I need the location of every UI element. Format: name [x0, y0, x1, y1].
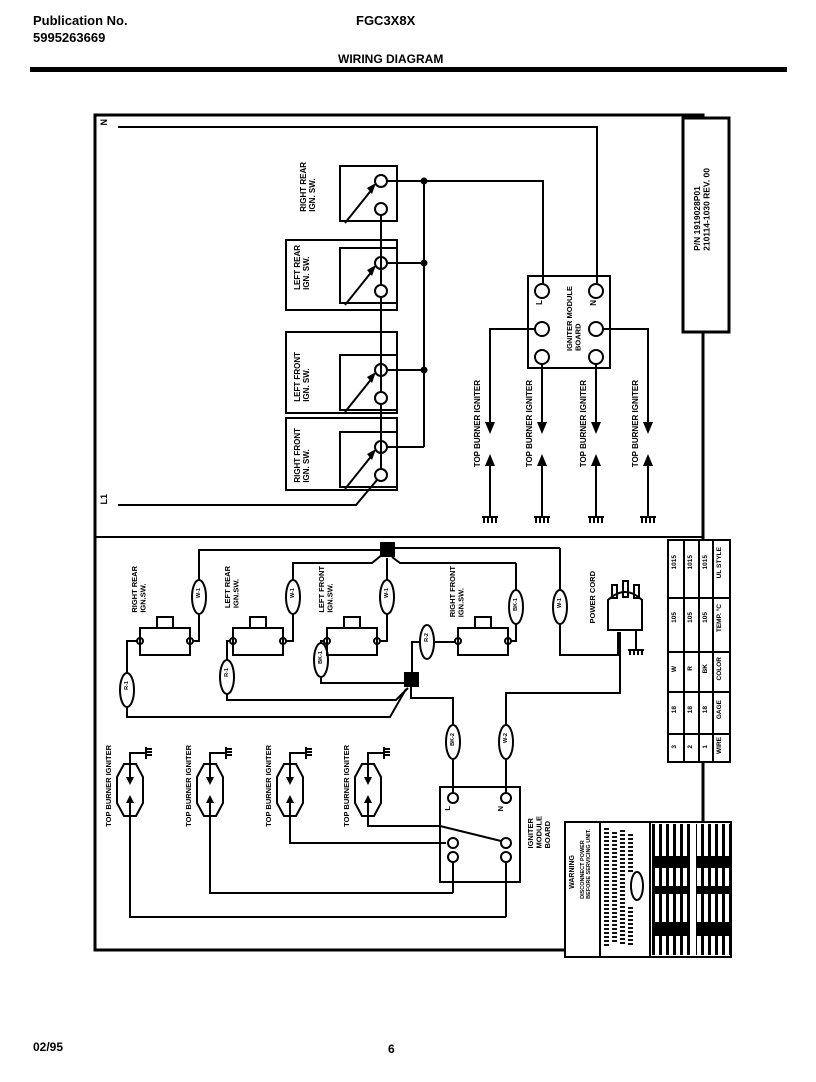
- wire-tag-6: W-1: [384, 588, 390, 598]
- wire-table-cell: 18: [671, 706, 678, 713]
- wire-tag-2: W-1: [196, 588, 202, 598]
- wire-table-header-temp: TEMP. °C: [716, 604, 723, 632]
- power-cord-label: POWER CORD: [589, 571, 597, 624]
- igniter-outputs: [482, 329, 656, 523]
- layout-switch-label-right-rear: RIGHT REAR IGN.SW.: [131, 566, 148, 613]
- layout-igniter-label-4: TOP BURNER IGNITER: [343, 745, 351, 827]
- wire-table-cell: W: [671, 666, 678, 672]
- igniter-label-3: TOP BURNER IGNITER: [580, 380, 589, 467]
- wire-tag-5: BK-1: [318, 651, 324, 664]
- wire-table-header-wire: WIRE: [716, 737, 723, 754]
- layout-switch-label-left-front: LEFT FRONT IGN.SW.: [318, 566, 335, 613]
- wire-tag-9: W-1: [557, 598, 563, 608]
- legend-gap: [690, 824, 696, 955]
- module-board-label-schematic: IGNITER MODULE BOARD: [566, 286, 583, 351]
- manual-page: Publication No. 5995263669 FGC3X8X WIRIN…: [0, 0, 816, 1082]
- module-terminal-n-layout: N: [497, 806, 505, 811]
- switch-label-left-front: LEFT FRONT IGN. SW.: [294, 352, 312, 402]
- wire-table-cell: 3: [671, 745, 678, 749]
- wire-table-header-ulstyle: UL STYLE: [716, 547, 723, 578]
- wire-table-cell: 18: [687, 706, 694, 713]
- wire-table-header-gage: GAGE: [716, 700, 723, 719]
- wire-table-cell: 1015: [702, 555, 709, 569]
- line-terminal-label: L1: [99, 494, 109, 505]
- layout-wires: [127, 548, 620, 917]
- igniter-label-4: TOP BURNER IGNITER: [632, 380, 641, 467]
- ignition-switch-right-rear: [340, 166, 397, 223]
- module-board-label-layout: IGNITER MODULE BOARD: [527, 816, 552, 849]
- layout-section: [117, 540, 731, 957]
- module-terminal-l-schematic: L: [536, 300, 545, 305]
- module-terminal-n-schematic: N: [590, 300, 599, 306]
- wire-table-cell: 1015: [671, 555, 678, 569]
- warning-fine-print: [628, 905, 633, 945]
- wire-table-cell: BK: [702, 664, 709, 673]
- layout-switch-label-left-rear: LEFT REAR IGN.SW.: [224, 566, 241, 608]
- warning-fine-print: [612, 830, 617, 942]
- switch-label-right-rear: RIGHT REAR IGN. SW.: [300, 162, 318, 212]
- warning-fine-print: [620, 828, 625, 944]
- switch-label-left-rear: LEFT REAR IGN. SW.: [294, 245, 312, 290]
- wire-table-cell: 1015: [687, 555, 694, 569]
- layout-igniter-label-2: TOP BURNER IGNITER: [185, 745, 193, 827]
- power-cord-plug: [608, 581, 644, 655]
- warning-title: WARNING: [569, 855, 577, 889]
- wire-table-cell: R: [687, 666, 694, 671]
- part-number-text: P/N 1919028P01 210114-1030 REV. 00: [693, 168, 712, 251]
- wire-table-cell: 105: [687, 612, 694, 623]
- wire-tag-ovals: [120, 580, 567, 759]
- igniter-label-2: TOP BURNER IGNITER: [526, 380, 535, 467]
- wire-tag-10: BK-2: [450, 733, 456, 746]
- layout-igniter-label-3: TOP BURNER IGNITER: [265, 745, 273, 827]
- wire-table-cell: 105: [671, 612, 678, 623]
- layout-igniter-label-1: TOP BURNER IGNITER: [105, 745, 113, 827]
- warning-fine-print: [604, 828, 609, 946]
- wire-table-cell: 18: [702, 706, 709, 713]
- wire-tag-8: BK-1: [513, 598, 519, 611]
- wire-table-header-color: COLOR: [716, 657, 723, 680]
- wire-table-cell: 1: [702, 745, 709, 749]
- ignition-switch-right-front: [340, 432, 397, 489]
- module-terminal-l-layout: L: [444, 806, 452, 811]
- wire-table-cell: 105: [702, 612, 709, 623]
- wire-tag-7: R-2: [424, 633, 430, 642]
- wire-tag-3: R-1: [224, 668, 230, 677]
- ignition-switch-left-rear: [340, 248, 397, 305]
- igniter-label-1: TOP BURNER IGNITER: [474, 380, 483, 467]
- warning-fine-print: [628, 832, 633, 872]
- warning-body: DISCONNECT POWER BEFORE SERVICING UNIT.: [580, 829, 592, 899]
- ignition-switch-left-front: [340, 355, 397, 412]
- wire-table-cell: 2: [687, 745, 694, 749]
- layout-switch-label-right-front: RIGHT FRONT IGN.SW.: [449, 566, 466, 617]
- wire-tag-11: W-2: [503, 733, 509, 743]
- switch-label-right-front: RIGHT FRONT IGN. SW.: [294, 428, 312, 483]
- wire-tag-4: W-1: [290, 588, 296, 598]
- junction-square-2: [404, 672, 419, 687]
- wire-tag-1: R-1: [124, 681, 130, 690]
- valve-switch-boxes: [137, 617, 511, 655]
- neutral-terminal-label: N: [99, 119, 109, 126]
